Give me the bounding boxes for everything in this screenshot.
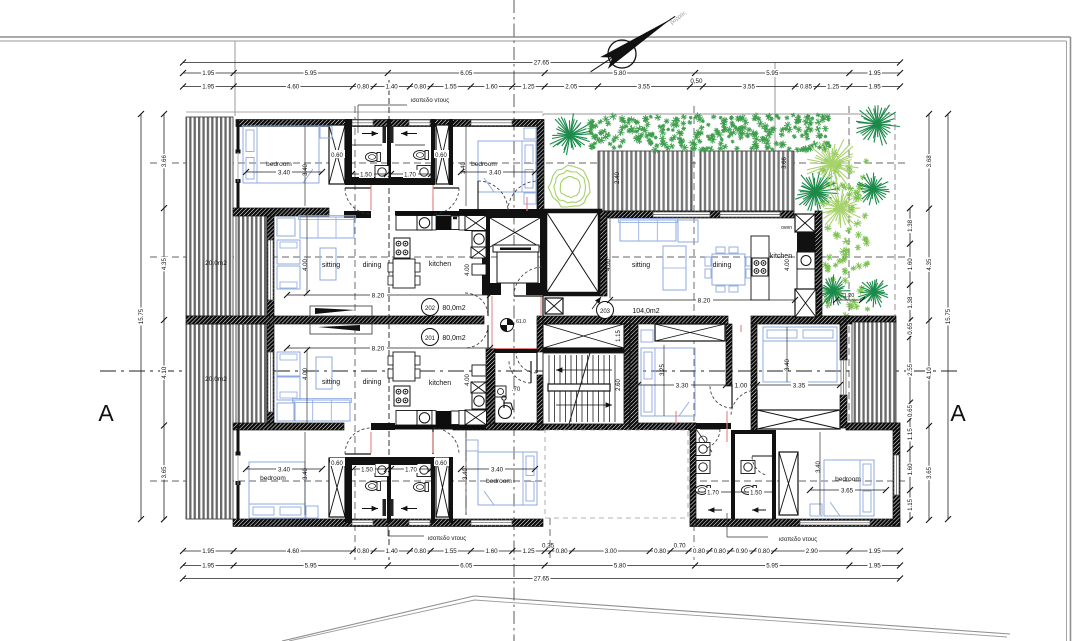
svg-text:1.20: 1.20 xyxy=(844,293,855,299)
svg-text:20.0m2: 20.0m2 xyxy=(205,260,227,267)
svg-text:3.66: 3.66 xyxy=(161,155,168,168)
svg-text:3.40: 3.40 xyxy=(303,468,309,480)
svg-text:0.60: 0.60 xyxy=(331,461,343,467)
svg-text:0.80: 0.80 xyxy=(414,548,427,555)
svg-text:1.15: 1.15 xyxy=(907,428,914,441)
svg-text:1.25: 1.25 xyxy=(522,84,535,91)
svg-text:0.60: 0.60 xyxy=(331,153,343,159)
svg-text:1.70: 1.70 xyxy=(405,468,417,474)
svg-text:5.95: 5.95 xyxy=(305,70,318,77)
svg-text:104,0m2: 104,0m2 xyxy=(632,308,659,315)
svg-text:1.70: 1.70 xyxy=(404,173,416,179)
svg-text:1.00: 1.00 xyxy=(735,383,748,390)
svg-text:80,0m2: 80,0m2 xyxy=(442,335,465,342)
svg-text:.70: .70 xyxy=(512,387,521,393)
svg-text:4.35: 4.35 xyxy=(926,258,933,271)
svg-text:0.60: 0.60 xyxy=(435,153,447,159)
svg-text:20.0m2: 20.0m2 xyxy=(205,376,227,383)
svg-text:bedroom: bedroom xyxy=(471,161,497,168)
svg-text:ισοπεδο ντους: ισοπεδο ντους xyxy=(428,536,466,542)
svg-text:8.20: 8.20 xyxy=(372,293,385,300)
svg-text:0.80: 0.80 xyxy=(714,548,727,555)
svg-text:dining: dining xyxy=(713,262,732,269)
svg-text:1.95: 1.95 xyxy=(869,84,882,91)
svg-text:1.60: 1.60 xyxy=(486,548,499,555)
svg-text:1.55: 1.55 xyxy=(445,548,458,555)
svg-text:6.05: 6.05 xyxy=(460,563,473,570)
svg-text:3.40: 3.40 xyxy=(785,359,791,371)
svg-text:3.00: 3.00 xyxy=(605,548,618,555)
svg-text:1.50: 1.50 xyxy=(360,173,372,179)
svg-text:3.68: 3.68 xyxy=(926,155,933,168)
svg-text:203: 203 xyxy=(600,309,611,315)
svg-text:2.55: 2.55 xyxy=(907,363,914,376)
svg-text:3.40: 3.40 xyxy=(489,170,502,177)
svg-text:2.40: 2.40 xyxy=(615,172,621,184)
svg-text:kitchen: kitchen xyxy=(429,380,451,387)
svg-text:bedroom: bedroom xyxy=(486,478,512,485)
svg-text:8.20: 8.20 xyxy=(372,346,385,353)
svg-text:bedroom: bedroom xyxy=(835,476,861,483)
svg-text:1.15: 1.15 xyxy=(907,498,914,511)
svg-text:202: 202 xyxy=(425,306,436,312)
svg-text:3.40: 3.40 xyxy=(461,162,467,174)
svg-text:3.66: 3.66 xyxy=(782,157,788,169)
svg-text:1.95: 1.95 xyxy=(869,563,882,570)
svg-text:3.55: 3.55 xyxy=(638,84,651,91)
svg-text:0.80: 0.80 xyxy=(556,548,569,555)
svg-text:0.80: 0.80 xyxy=(758,548,771,555)
svg-text:3.65: 3.65 xyxy=(161,466,168,479)
svg-text:15.75: 15.75 xyxy=(945,308,952,324)
svg-text:2.60: 2.60 xyxy=(616,379,622,391)
svg-text:6.05: 6.05 xyxy=(460,70,473,77)
svg-text:1.95: 1.95 xyxy=(869,548,882,555)
svg-text:3.40: 3.40 xyxy=(491,467,504,474)
svg-text:3.30: 3.30 xyxy=(676,383,689,390)
svg-text:15.75: 15.75 xyxy=(138,308,145,324)
svg-text:4.60: 4.60 xyxy=(287,548,300,555)
svg-text:1.50: 1.50 xyxy=(750,491,762,497)
svg-text:5.80: 5.80 xyxy=(614,70,627,77)
svg-text:3.35: 3.35 xyxy=(793,383,806,390)
svg-text:1.95: 1.95 xyxy=(202,548,215,555)
svg-text:5.95: 5.95 xyxy=(305,563,318,570)
svg-text:0.80: 0.80 xyxy=(357,548,370,555)
svg-text:3.40: 3.40 xyxy=(278,467,291,474)
svg-text:dining: dining xyxy=(363,379,382,386)
svg-text:ισοπεδο ντους: ισοπεδο ντους xyxy=(779,537,817,543)
svg-text:sitting: sitting xyxy=(322,379,340,386)
svg-text:1.95: 1.95 xyxy=(202,563,215,570)
svg-text:0.85: 0.85 xyxy=(800,84,813,91)
svg-text:1.60: 1.60 xyxy=(907,463,914,476)
svg-text:1.25: 1.25 xyxy=(827,84,840,91)
svg-text:80,0m2: 80,0m2 xyxy=(442,305,465,312)
svg-text:5.95: 5.95 xyxy=(766,563,779,570)
svg-text:1.40: 1.40 xyxy=(386,84,399,91)
svg-text:1.25: 1.25 xyxy=(522,548,535,555)
svg-text:3.65: 3.65 xyxy=(926,466,933,479)
svg-text:0.80: 0.80 xyxy=(414,84,427,91)
svg-text:5.80: 5.80 xyxy=(614,563,627,570)
svg-text:bedroom: bedroom xyxy=(266,161,292,168)
svg-text:4.00: 4.00 xyxy=(606,259,612,271)
svg-text:3.40: 3.40 xyxy=(816,461,822,473)
svg-text:3.40: 3.40 xyxy=(278,170,291,177)
svg-text:3.55: 3.55 xyxy=(743,84,756,91)
svg-text:3.40: 3.40 xyxy=(463,468,469,480)
svg-text:0.65: 0.65 xyxy=(907,404,914,417)
svg-text:4.00: 4.00 xyxy=(303,368,309,380)
svg-text:2.05: 2.05 xyxy=(565,84,578,91)
svg-text:1.15: 1.15 xyxy=(616,330,622,342)
svg-text:4.35: 4.35 xyxy=(161,258,168,271)
svg-text:1.70: 1.70 xyxy=(707,491,719,497)
svg-text:61.0: 61.0 xyxy=(516,319,526,325)
svg-text:1.95: 1.95 xyxy=(869,70,882,77)
svg-text:1.60: 1.60 xyxy=(907,258,914,271)
svg-text:A: A xyxy=(950,400,966,426)
svg-text:1.38: 1.38 xyxy=(907,219,914,232)
svg-text:4.00: 4.00 xyxy=(465,374,471,386)
svg-text:1.95: 1.95 xyxy=(202,84,215,91)
svg-text:4.60: 4.60 xyxy=(287,84,300,91)
svg-text:0.80: 0.80 xyxy=(654,548,667,555)
svg-text:0.60: 0.60 xyxy=(435,461,447,467)
svg-text:4.10: 4.10 xyxy=(926,367,933,380)
svg-text:sitting: sitting xyxy=(632,262,650,269)
svg-text:27.65: 27.65 xyxy=(534,60,550,67)
svg-text:8.20: 8.20 xyxy=(698,298,711,305)
svg-text:3.65: 3.65 xyxy=(841,488,854,495)
svg-text:0.90: 0.90 xyxy=(736,548,749,555)
svg-text:bedroom: bedroom xyxy=(260,475,286,482)
svg-text:3.40: 3.40 xyxy=(303,164,309,176)
svg-text:4.10: 4.10 xyxy=(161,366,168,379)
svg-text:oven: oven xyxy=(781,225,792,231)
svg-text:5.95: 5.95 xyxy=(766,70,779,77)
svg-text:0.65: 0.65 xyxy=(907,322,914,335)
svg-text:0,50: 0,50 xyxy=(690,78,703,85)
svg-text:1.60: 1.60 xyxy=(486,84,499,91)
svg-text:ισοπεδο ντους: ισοπεδο ντους xyxy=(411,98,449,104)
svg-text:3.25: 3.25 xyxy=(660,364,666,376)
svg-text:27.65: 27.65 xyxy=(534,576,550,583)
svg-text:0.80: 0.80 xyxy=(693,548,706,555)
svg-text:A: A xyxy=(98,400,114,426)
svg-text:4.00: 4.00 xyxy=(303,259,309,271)
svg-text:kitchen: kitchen xyxy=(770,253,792,260)
svg-text:4.00: 4.00 xyxy=(785,259,791,271)
svg-text:1.38: 1.38 xyxy=(907,296,914,309)
svg-text:1.50: 1.50 xyxy=(361,468,373,474)
svg-text:0.70: 0.70 xyxy=(674,543,687,550)
svg-text:4.00: 4.00 xyxy=(465,264,471,276)
svg-text:2.90: 2.90 xyxy=(806,548,819,555)
svg-text:kitchen: kitchen xyxy=(429,261,451,268)
svg-text:201: 201 xyxy=(425,336,436,342)
svg-text:dining: dining xyxy=(363,262,382,269)
svg-text:1.95: 1.95 xyxy=(202,70,215,77)
svg-text:1.55: 1.55 xyxy=(445,84,458,91)
svg-text:0.25: 0.25 xyxy=(542,543,555,550)
svg-text:0.80: 0.80 xyxy=(357,84,370,91)
svg-text:sitting: sitting xyxy=(322,262,340,269)
svg-text:1.40: 1.40 xyxy=(386,548,399,555)
